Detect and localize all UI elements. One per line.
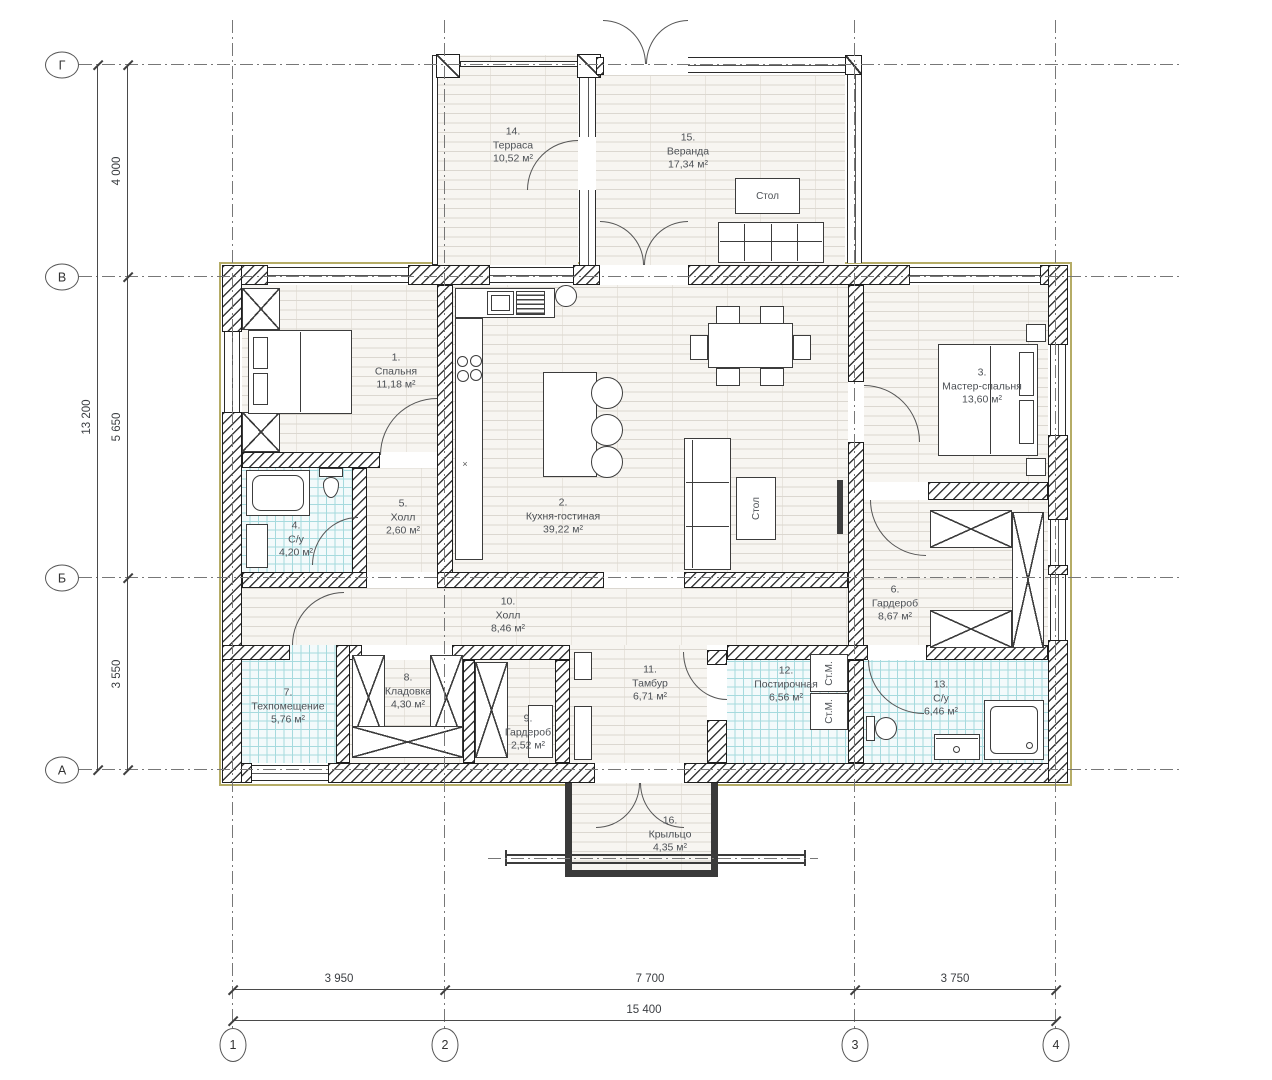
pillow bbox=[253, 337, 268, 369]
chair bbox=[716, 368, 740, 386]
room-label-master-bedroom: 3.Мастер-спальня13,60 м² bbox=[942, 367, 1022, 408]
room-label-laundry: 12.Постирочная6,56 м² bbox=[754, 665, 818, 706]
grid-line-B bbox=[79, 577, 1182, 578]
room-label-bedroom: 1.Спальня11,18 м² bbox=[375, 352, 417, 393]
sink-line bbox=[936, 738, 978, 739]
bench bbox=[574, 706, 592, 760]
axis-bubble-G: Г bbox=[45, 52, 79, 79]
window-wardrobe-right bbox=[1050, 520, 1066, 565]
wall-segment bbox=[328, 763, 595, 783]
porch-wall bbox=[565, 870, 718, 877]
room-label-terrace: 14.Терраса10,52 м² bbox=[493, 126, 533, 167]
chair bbox=[716, 306, 740, 324]
dimension-label-total: 13 200 bbox=[81, 399, 93, 434]
axis-bubble-3: 3 bbox=[842, 1028, 869, 1062]
door-arc-veranda-exterior bbox=[646, 20, 688, 64]
wardrobe-unit bbox=[1012, 512, 1044, 648]
stove-burner bbox=[457, 356, 468, 367]
terrace-left-wall bbox=[432, 55, 438, 265]
kitchen-sink-basin bbox=[491, 295, 510, 311]
sofa-cushion-line bbox=[686, 526, 729, 527]
wall-segment bbox=[242, 572, 367, 588]
window bbox=[579, 78, 596, 137]
wall-segment bbox=[1048, 565, 1068, 575]
wall-master-wardrobe bbox=[928, 482, 1048, 500]
wall-tech-storage bbox=[336, 645, 350, 763]
axis-bubble-4: 4 bbox=[1043, 1028, 1070, 1062]
dimension-label: 4 000 bbox=[111, 157, 123, 186]
stove-burner bbox=[457, 370, 469, 382]
window-master-top bbox=[910, 267, 1040, 283]
wall-segment bbox=[408, 265, 490, 285]
dimension-line bbox=[233, 1020, 1056, 1021]
dish-rack bbox=[516, 291, 545, 315]
sofa-cushion-line bbox=[686, 482, 729, 483]
sink-cross-mark: × bbox=[462, 459, 467, 469]
window bbox=[579, 190, 596, 265]
room-label-porch: 16.Крыльцо4,35 м² bbox=[649, 815, 692, 856]
kitchen-counter bbox=[455, 318, 483, 560]
bar-stool bbox=[591, 446, 623, 478]
porch-step-line bbox=[505, 862, 805, 864]
stove-burner bbox=[470, 355, 482, 367]
wardrobe-unit bbox=[930, 510, 1012, 548]
window-master-right bbox=[1050, 345, 1066, 435]
wall-kitchen-master bbox=[848, 285, 864, 382]
wall-segment bbox=[1048, 640, 1068, 783]
window-bedroom-top bbox=[268, 267, 408, 283]
dimension-label: 3 950 bbox=[325, 973, 354, 987]
room-label-hall-10: 10.Холл8,46 м² bbox=[491, 596, 525, 637]
room-label-bathroom-4: 4.С/у4,20 м² bbox=[279, 520, 313, 561]
grid-line-3 bbox=[854, 20, 855, 1028]
bathtub-inner bbox=[252, 475, 304, 511]
grid-line-G bbox=[79, 64, 1182, 65]
wardrobe-unit bbox=[930, 610, 1012, 648]
bar-stool bbox=[591, 377, 623, 409]
wall-segment bbox=[573, 265, 600, 285]
shower-drain bbox=[1026, 742, 1033, 749]
window-tech-bottom bbox=[252, 765, 328, 781]
bench bbox=[574, 652, 592, 680]
toilet-tank bbox=[319, 468, 343, 477]
axis-bubble-B: Б bbox=[45, 565, 79, 592]
room-label-veranda: 15.Веранда17,34 м² bbox=[667, 132, 709, 173]
bathroom-cabinet bbox=[246, 524, 268, 568]
bar-stool bbox=[591, 414, 623, 446]
toilet-bowl bbox=[875, 717, 897, 740]
wall-bedroom-bottom bbox=[242, 452, 380, 468]
tv bbox=[837, 480, 843, 534]
grid-line-A bbox=[79, 769, 1182, 770]
wall-segment bbox=[684, 763, 1068, 783]
veranda-sofa-line bbox=[744, 224, 745, 261]
veranda-sofa-line bbox=[797, 224, 798, 261]
window-kitchen-top bbox=[490, 267, 573, 283]
blanket-line bbox=[300, 332, 301, 412]
wall-segment bbox=[684, 572, 848, 588]
kitchen-island bbox=[543, 372, 597, 477]
room-label-tech-room: 7.Техпомещение5,76 м² bbox=[251, 687, 324, 728]
dimension-label: 3 550 bbox=[111, 660, 123, 689]
sink-faucet bbox=[953, 746, 960, 753]
wall-segment bbox=[688, 265, 910, 285]
toilet-tank bbox=[866, 716, 875, 741]
sofa-back-line bbox=[692, 440, 693, 568]
pillow bbox=[253, 373, 268, 405]
chair bbox=[760, 306, 784, 324]
wall-kitchen-master bbox=[848, 442, 864, 660]
terrace-post bbox=[436, 54, 460, 78]
dimension-label-total: 15 400 bbox=[626, 1004, 661, 1018]
dimension-label: 3 750 bbox=[941, 973, 970, 987]
dimension-label: 5 650 bbox=[111, 413, 123, 442]
nightstand bbox=[1026, 324, 1046, 342]
wardrobe-unit bbox=[242, 288, 280, 330]
grid-line-2 bbox=[444, 20, 445, 1028]
chair bbox=[760, 368, 784, 386]
room-label-wardrobe-9: 9.Гардероб2,52 м² bbox=[505, 713, 551, 754]
chair bbox=[793, 335, 811, 360]
dimension-line bbox=[97, 65, 98, 770]
dining-table bbox=[708, 323, 793, 368]
wall-laundry-bath13 bbox=[848, 660, 864, 763]
wall-segment bbox=[1048, 435, 1068, 520]
wall-storage-wardrobe9 bbox=[463, 660, 475, 763]
coffee-table: Стол bbox=[736, 477, 776, 540]
dimension-label: 7 700 bbox=[636, 973, 665, 987]
veranda-table: Стол bbox=[735, 178, 800, 214]
grid-line-V bbox=[79, 276, 1182, 277]
axis-bubble-2: 2 bbox=[432, 1028, 459, 1062]
decor-circle bbox=[555, 285, 577, 307]
axis-bubble-V: В bbox=[45, 264, 79, 291]
grid-line-1 bbox=[232, 20, 233, 1028]
dimension-line bbox=[127, 65, 128, 770]
dimension-line bbox=[233, 989, 1056, 990]
room-label-storage: 8.Кладовка4,30 м² bbox=[385, 672, 431, 713]
wall-segment bbox=[437, 572, 604, 588]
stove-burner bbox=[470, 369, 482, 381]
axis-bubble-1: 1 bbox=[220, 1028, 247, 1062]
wardrobe-unit bbox=[475, 662, 508, 758]
wall-tambour-laundry bbox=[707, 720, 727, 763]
axis-bubble-A: А bbox=[45, 757, 79, 784]
wall-segment bbox=[452, 645, 570, 660]
wall-wardrobe9-tambour bbox=[555, 660, 570, 763]
wardrobe-unit bbox=[242, 412, 280, 452]
chair bbox=[690, 335, 708, 360]
wardrobe-unit bbox=[352, 726, 463, 758]
room-label-bathroom-13: 13.С/у6,46 м² bbox=[924, 679, 958, 720]
grid-line-4 bbox=[1055, 20, 1056, 1028]
room-label-kitchen-living: 2.Кухня-гостиная39,22 м² bbox=[526, 497, 600, 538]
window-wardrobe-right bbox=[1050, 575, 1066, 640]
porch-axis-dash bbox=[488, 858, 818, 859]
nightstand bbox=[1026, 458, 1046, 476]
floor-plan-canvas: × Стол Стол Ст.М. Ст.М. bbox=[0, 0, 1272, 1080]
room-label-hall-5: 5.Холл2,60 м² bbox=[386, 498, 420, 539]
room-label-tambour: 11.Тамбур6,71 м² bbox=[632, 664, 668, 705]
room-label-wardrobe-6: 6.Гардероб8,67 м² bbox=[872, 584, 918, 625]
veranda-sofa-line bbox=[771, 224, 772, 261]
veranda-sofa-line bbox=[720, 241, 822, 242]
door-arc-veranda-exterior bbox=[603, 20, 646, 64]
